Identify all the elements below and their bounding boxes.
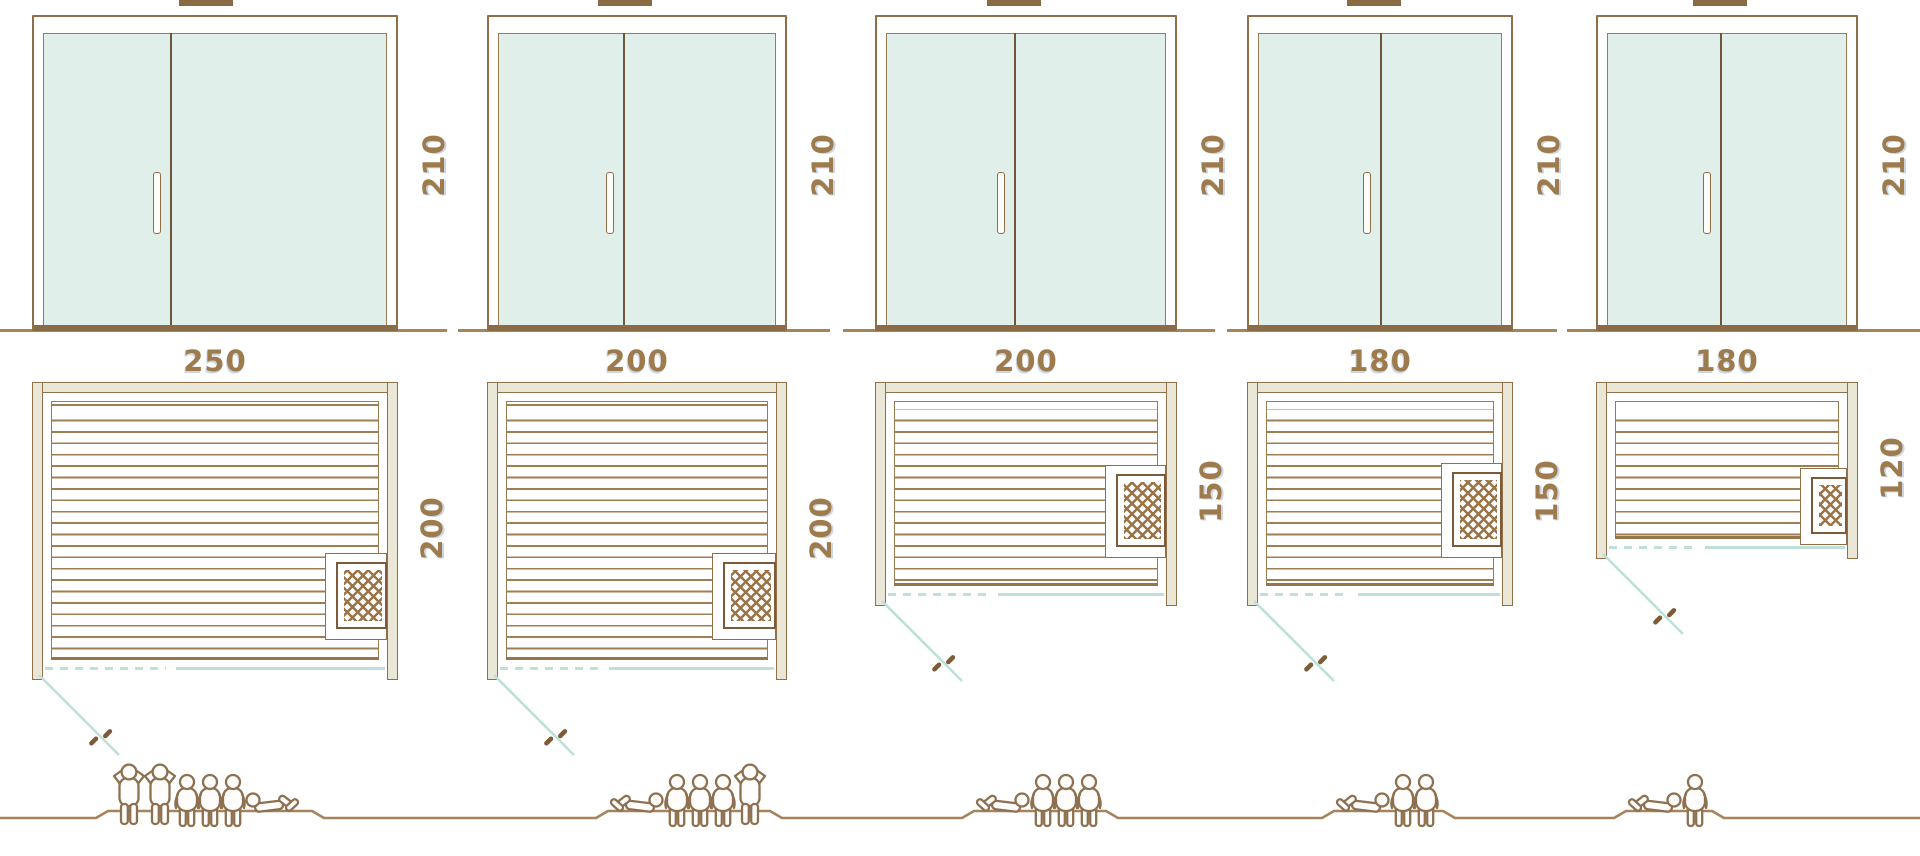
person-seated-icon	[1683, 775, 1706, 826]
door-handle-icon	[1703, 172, 1711, 234]
plan-wall-top	[1596, 382, 1858, 393]
door-divider-line	[623, 33, 625, 327]
door-sill	[34, 325, 396, 331]
door-divider-line	[170, 33, 172, 327]
plan-wall-right	[776, 382, 787, 680]
door-handle-icon	[1363, 172, 1371, 234]
glass-door-panels	[1607, 33, 1847, 327]
depth-dimension-label: 120	[1875, 428, 1905, 508]
door-opening-dashed-line	[500, 667, 599, 670]
heater-grate-pattern	[1819, 485, 1842, 526]
door-divider-line	[1380, 33, 1382, 327]
capacity-group-6-persons	[114, 765, 299, 826]
person-reclining-icon	[247, 794, 300, 813]
plan-wall-top	[32, 382, 398, 393]
door-handle-icon	[153, 172, 161, 234]
height-dimension-label: 210	[1196, 125, 1226, 205]
door-opening-dashed-line	[45, 667, 166, 670]
door-handle-icon	[997, 172, 1005, 234]
width-dimension-label: 250	[155, 344, 275, 378]
width-dimension-label: 200	[577, 344, 697, 378]
door-swing-line	[39, 675, 119, 755]
heater-grate-pattern	[731, 570, 771, 621]
ground-terrain-line	[0, 811, 1920, 818]
plan-wall-right	[1847, 382, 1858, 559]
height-dimension-label: 210	[1877, 125, 1907, 205]
plan-wall-right	[387, 382, 398, 680]
plan-wall-left	[1247, 382, 1258, 606]
door-swing-line	[494, 675, 574, 755]
plan-wall-top	[875, 382, 1177, 393]
sauna-size-comparison-diagram: 2102502002102002002102001502101801502101…	[0, 0, 1920, 856]
door-opening-dashed-line	[1609, 546, 1695, 549]
person-seated-icon	[175, 775, 198, 826]
depth-dimension-label: 200	[415, 488, 445, 568]
vent-cap-icon	[1347, 0, 1401, 6]
person-reclining-icon	[610, 794, 663, 813]
door-sill	[1249, 325, 1511, 331]
capacity-group-3-persons	[1336, 775, 1438, 826]
depth-dimension-label: 150	[1194, 451, 1224, 531]
vent-cap-icon	[179, 0, 233, 6]
capacity-group-5-persons	[610, 765, 765, 826]
person-seated-icon	[198, 775, 221, 826]
glass-wall-plan-line	[176, 667, 385, 670]
plan-wall-left	[1596, 382, 1607, 559]
glass-door-panels	[886, 33, 1166, 327]
plan-wall-top	[1247, 382, 1513, 393]
person-seated-icon	[688, 775, 711, 826]
plan-wall-left	[32, 382, 43, 680]
person-seated-icon	[1391, 775, 1414, 826]
bench-front-rail	[51, 657, 379, 660]
door-handle-plan-icon	[88, 725, 113, 750]
heater-grate-pattern	[344, 570, 382, 621]
glass-door-panels	[43, 33, 387, 327]
vent-cap-icon	[598, 0, 652, 6]
glass-wall-plan-line	[1705, 546, 1845, 549]
glass-wall-plan-line	[1358, 593, 1500, 596]
door-swing-line	[882, 601, 962, 681]
width-dimension-label: 180	[1320, 344, 1440, 378]
person-reclining-icon	[1336, 794, 1389, 813]
door-sill	[489, 325, 785, 331]
door-handle-plan-icon	[543, 725, 568, 750]
capacity-group-4-persons	[976, 775, 1101, 826]
capacity-group-2-persons	[1628, 775, 1707, 826]
door-divider-line	[1014, 33, 1016, 327]
person-seated-icon	[665, 775, 688, 826]
plan-wall-top	[487, 382, 787, 393]
capacity-people-layer	[0, 726, 1920, 856]
person-seated-icon	[221, 775, 244, 826]
door-divider-line	[1720, 33, 1722, 327]
plan-wall-left	[875, 382, 886, 606]
plan-wall-right	[1502, 382, 1513, 606]
height-dimension-label: 210	[806, 125, 836, 205]
heater-grate-pattern	[1460, 480, 1497, 539]
bench-front-rail	[1266, 583, 1494, 586]
person-standing-icon	[114, 765, 144, 824]
height-dimension-label: 210	[417, 125, 447, 205]
person-seated-icon	[1077, 775, 1100, 826]
depth-dimension-label: 200	[804, 488, 834, 568]
door-handle-plan-icon	[1303, 651, 1328, 676]
person-seated-icon	[1031, 775, 1054, 826]
person-reclining-icon	[1628, 794, 1681, 813]
plan-wall-left	[487, 382, 498, 680]
person-seated-icon	[711, 775, 734, 826]
door-handle-plan-icon	[1652, 604, 1677, 629]
person-seated-icon	[1054, 775, 1077, 826]
door-handle-icon	[606, 172, 614, 234]
person-standing-icon	[735, 765, 765, 824]
plan-wall-right	[1166, 382, 1177, 606]
door-swing-line	[1254, 601, 1334, 681]
bench-front-rail	[506, 657, 768, 660]
glass-wall-plan-line	[998, 593, 1164, 596]
door-sill	[877, 325, 1175, 331]
heater-grate-pattern	[1124, 482, 1161, 539]
vent-cap-icon	[1693, 0, 1747, 6]
person-standing-icon	[145, 765, 175, 824]
glass-door-panels	[498, 33, 776, 327]
width-dimension-label: 200	[966, 344, 1086, 378]
person-reclining-icon	[976, 794, 1029, 813]
door-sill	[1598, 325, 1856, 331]
door-handle-plan-icon	[931, 651, 956, 676]
bench-front-rail	[894, 583, 1158, 586]
vent-cap-icon	[987, 0, 1041, 6]
glass-wall-plan-line	[609, 667, 774, 670]
person-seated-icon	[1414, 775, 1437, 826]
door-opening-dashed-line	[1260, 593, 1348, 596]
door-swing-line	[1603, 554, 1683, 634]
width-dimension-label: 180	[1667, 344, 1787, 378]
height-dimension-label: 210	[1532, 125, 1562, 205]
depth-dimension-label: 150	[1530, 451, 1560, 531]
door-opening-dashed-line	[888, 593, 988, 596]
